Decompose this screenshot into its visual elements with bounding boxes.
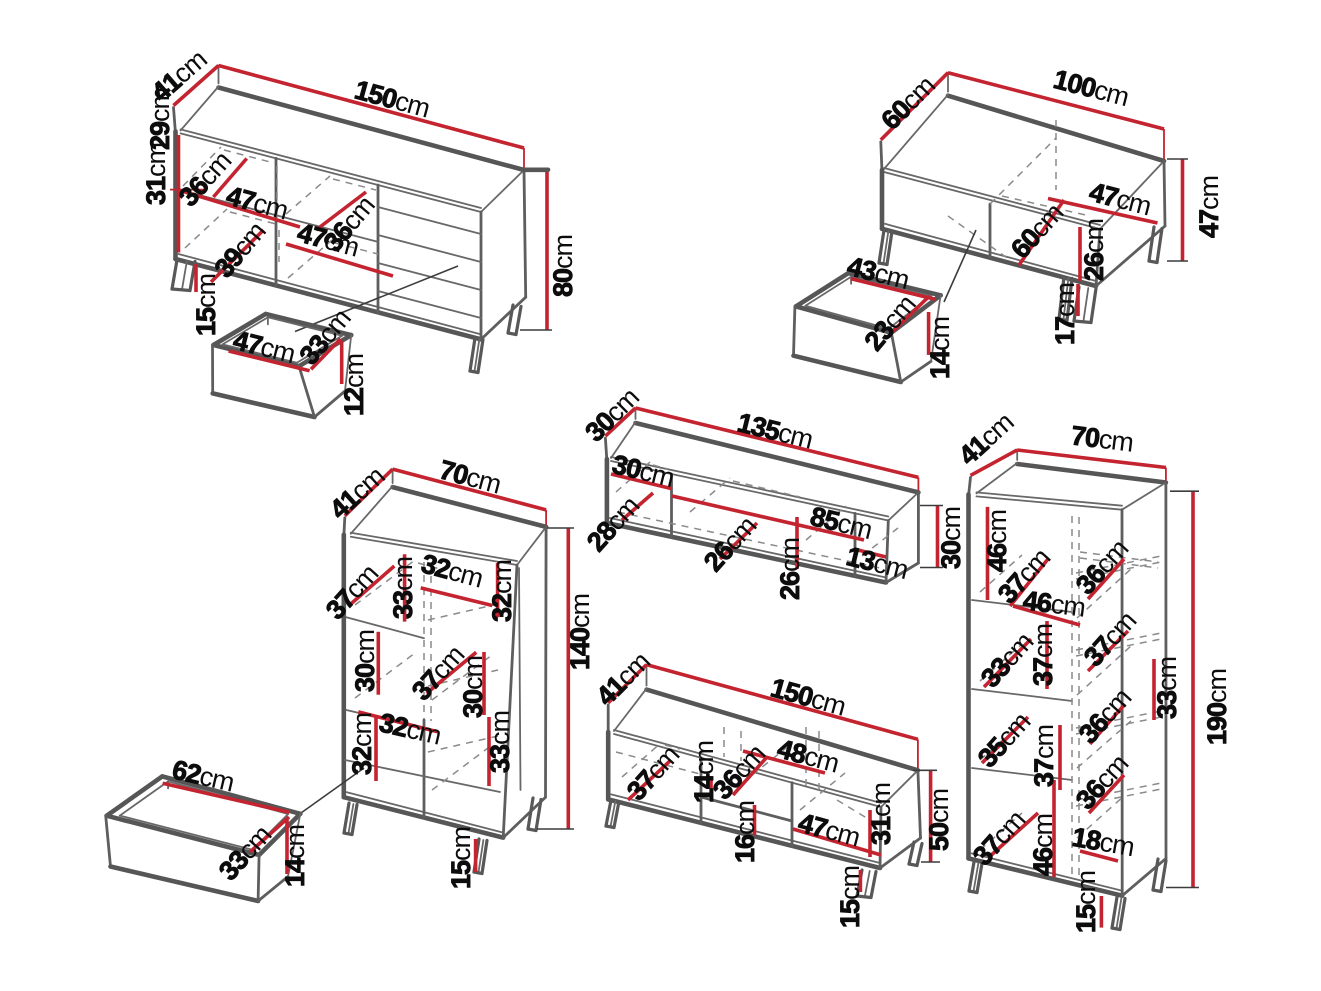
svg-text:26cm: 26cm (775, 538, 805, 600)
svg-text:15cm: 15cm (835, 866, 865, 928)
svg-text:31cm: 31cm (141, 143, 171, 205)
svg-text:30cm: 30cm (936, 507, 966, 569)
svg-text:14cm: 14cm (280, 825, 310, 887)
svg-text:50cm: 50cm (924, 789, 954, 851)
svg-text:47cm: 47cm (1194, 176, 1224, 238)
svg-text:16cm: 16cm (730, 801, 760, 863)
svg-text:31cm: 31cm (866, 783, 896, 845)
svg-text:15cm: 15cm (446, 827, 476, 889)
svg-text:46cm: 46cm (982, 510, 1012, 572)
svg-text:32cm: 32cm (487, 560, 517, 622)
svg-text:140cm: 140cm (565, 594, 595, 670)
svg-text:15cm: 15cm (191, 274, 221, 336)
svg-text:30cm: 30cm (350, 630, 380, 692)
svg-text:33cm: 33cm (1152, 657, 1182, 719)
svg-text:15cm: 15cm (1071, 871, 1101, 933)
svg-text:17cm: 17cm (1050, 283, 1080, 345)
svg-text:29cm: 29cm (145, 88, 175, 150)
svg-text:32cm: 32cm (347, 713, 377, 775)
svg-text:14cm: 14cm (689, 741, 719, 803)
svg-text:37cm: 37cm (1029, 725, 1059, 787)
svg-text:30cm: 30cm (458, 656, 488, 718)
svg-text:26cm: 26cm (1079, 219, 1109, 281)
svg-text:33cm: 33cm (388, 557, 418, 619)
svg-text:12cm: 12cm (339, 354, 369, 416)
svg-text:33cm: 33cm (485, 711, 515, 773)
svg-text:37cm: 37cm (1028, 624, 1058, 686)
svg-text:80cm: 80cm (548, 235, 578, 297)
svg-text:190cm: 190cm (1202, 669, 1232, 745)
svg-text:46cm: 46cm (1028, 814, 1058, 876)
svg-text:14cm: 14cm (925, 317, 955, 379)
